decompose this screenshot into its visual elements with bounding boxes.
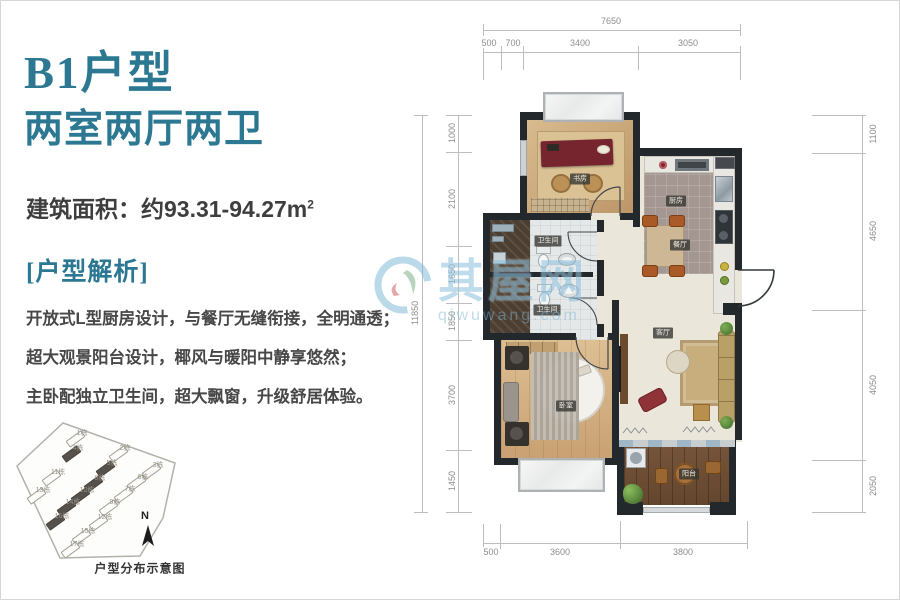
dimension-line — [446, 303, 472, 304]
dimension-line — [446, 512, 472, 513]
description-block: 开放式L型厨房设计，与餐厅无缝衔接，全明通透； 超大观景阳台设计，椰风与暖阳中静… — [26, 300, 426, 417]
dimension-line — [812, 115, 866, 116]
bathroom2-door-arc — [570, 298, 597, 325]
room-label-餐厅: 餐厅 — [670, 240, 690, 251]
building-label: 15栋 — [81, 526, 96, 536]
dim-right-seg: 2050 — [868, 475, 878, 497]
dim-left-seg: 1850 — [447, 310, 457, 332]
dimension-line — [501, 46, 502, 70]
building-label: 17栋 — [70, 539, 85, 549]
building-label: 8栋 — [95, 473, 106, 483]
area-value: 建筑面积：约93.31-94.27m — [26, 196, 307, 222]
building-area-text: 建筑面积：约93.31-94.27m2 — [26, 190, 314, 224]
dimension-line — [812, 460, 866, 461]
dim-top-seg: 3050 — [677, 38, 699, 48]
room-label-厨房: 厨房 — [666, 196, 686, 207]
section-title-analysis: [户型解析] — [26, 252, 149, 288]
dimension-line — [422, 115, 423, 513]
building-label: 9栋 — [110, 497, 121, 507]
dimension-line — [483, 30, 741, 31]
room-label-阳台: 阳台 — [679, 469, 699, 480]
building-label: 6栋 — [138, 472, 149, 482]
dim-right-seg: 1100 — [868, 123, 878, 144]
dimension-line — [638, 46, 639, 70]
entry-door-arc — [738, 270, 774, 306]
room-label-卫生间: 卫生间 — [535, 236, 562, 247]
compass-north-label: N — [141, 510, 149, 522]
desc-line-2: 超大观景阳台设计，椰风与暖阳中静享悠然； — [26, 339, 426, 378]
dimension-line — [620, 521, 621, 549]
dim-left-seg: 3700 — [447, 384, 457, 406]
dim-top-overall: 7650 — [600, 16, 622, 26]
dimension-line — [446, 152, 472, 153]
building-label: 14栋 — [66, 497, 81, 507]
dimension-line — [483, 46, 484, 80]
dimension-line — [812, 153, 866, 154]
room-label-卫生间: 卫生间 — [534, 305, 561, 316]
dim-right-seg: 4650 — [868, 220, 878, 242]
room-label-书房: 书房 — [570, 174, 590, 185]
dimension-line — [740, 24, 741, 36]
dim-left-seg: 2100 — [447, 188, 457, 210]
dim-left-seg: 1450 — [447, 470, 457, 492]
dimension-line — [458, 115, 459, 513]
dimension-line — [414, 115, 428, 116]
building-label: 5栋 — [107, 458, 118, 468]
study-door-arc — [591, 187, 620, 216]
dimension-line — [483, 521, 484, 549]
building-label: 11栋 — [51, 467, 65, 477]
dim-top-seg: 3400 — [569, 38, 591, 48]
dimension-line — [812, 310, 866, 311]
dim-left-seg: 1000 — [447, 122, 457, 144]
page-title: B1户型 — [24, 36, 175, 101]
area-superscript: 2 — [307, 197, 314, 211]
room-label-客厅: 客厅 — [653, 328, 673, 339]
building-label: 1栋 — [77, 428, 88, 438]
dim-top-seg: 700 — [504, 38, 521, 48]
building-label: 2栋 — [120, 443, 131, 453]
dimension-line — [446, 340, 472, 341]
dimension-line — [523, 46, 524, 70]
building-label: 3栋 — [153, 460, 164, 470]
dimension-line — [812, 512, 866, 513]
dimension-line — [747, 521, 748, 549]
dim-top-seg: 500 — [480, 38, 497, 48]
sitemap-caption: 户型分布示意图 — [94, 560, 185, 577]
floor-plan: 书房厨房餐厅卫生间卫生间卧室客厅阳台 — [479, 84, 791, 524]
dimension-line — [446, 115, 472, 116]
dimension-line — [500, 521, 501, 549]
site-distribution-map: 1栋4栋2栋5栋3栋11栋8栋6栋13栋10栋7栋14栋9栋16栋12栋15栋1… — [15, 418, 230, 593]
dim-bottom-seg: 3800 — [672, 547, 694, 557]
page-subtitle: 两室两厅两卫 — [24, 98, 264, 154]
bedroom-door-arc — [576, 337, 608, 369]
building-label: 12栋 — [98, 512, 113, 522]
dimension-line — [483, 52, 741, 53]
building-label: 10栋 — [80, 485, 95, 495]
building-label: 16栋 — [55, 511, 70, 521]
dimension-line — [740, 46, 741, 80]
dim-left-overall: 11850 — [410, 300, 420, 326]
building-label: 7栋 — [125, 484, 136, 494]
door-swing-overlay — [479, 84, 791, 524]
radiator-zigzag-icon — [683, 427, 715, 432]
room-label-卧室: 卧室 — [556, 401, 576, 412]
bathroom1-door-arc — [568, 232, 597, 261]
dim-right-seg: 4050 — [868, 374, 878, 396]
dim-left-seg: 1650 — [447, 263, 457, 285]
dimension-line — [446, 246, 472, 247]
dimension-line — [483, 543, 748, 544]
desc-line-1: 开放式L型厨房设计，与餐厅无缝衔接，全明通透； — [26, 300, 426, 339]
radiator-zigzag-icon — [623, 428, 647, 433]
dim-bottom-seg: 3600 — [549, 547, 571, 557]
building-label: 13栋 — [36, 485, 51, 495]
dimension-line — [483, 24, 484, 36]
dim-bottom-seg: 500 — [482, 547, 499, 557]
dimension-line — [414, 512, 428, 513]
dimension-line — [446, 450, 472, 451]
desc-line-3: 主卧配独立卫生间，超大飘窗，升级舒居体验。 — [26, 378, 426, 417]
floorplan-page: B1户型 两室两厅两卫 建筑面积：约93.31-94.27m2 [户型解析] 开… — [0, 0, 900, 600]
dimension-line — [862, 115, 863, 513]
building-label: 4栋 — [73, 443, 84, 453]
